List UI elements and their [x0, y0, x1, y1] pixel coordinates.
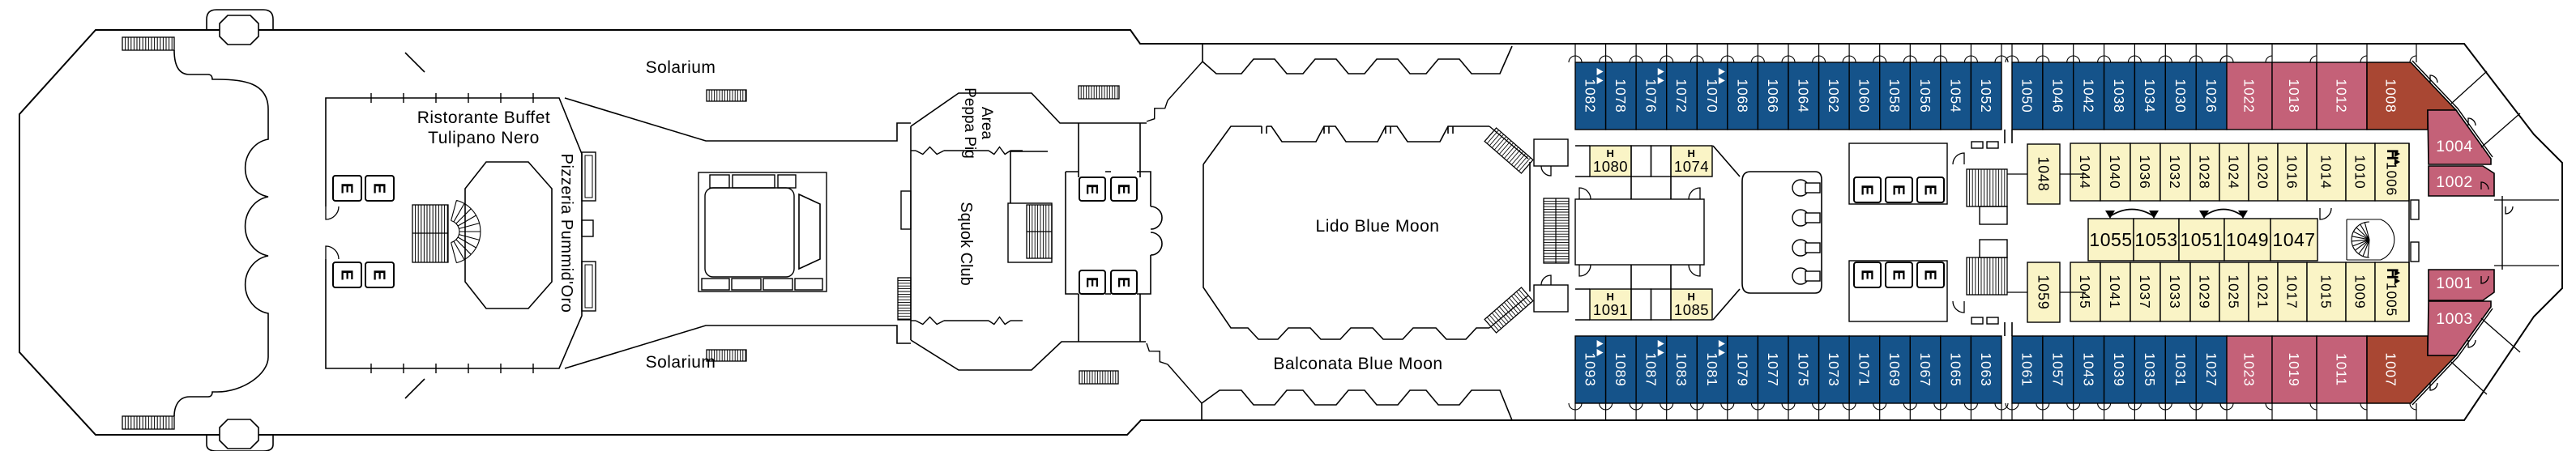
svg-text:1037: 1037	[2137, 274, 2153, 308]
svg-text:1039: 1039	[2111, 352, 2127, 386]
svg-text:1074: 1074	[1674, 158, 1709, 175]
svg-text:1035: 1035	[2142, 352, 2158, 386]
svg-text:1054: 1054	[1947, 79, 1963, 113]
svg-text:E: E	[338, 183, 356, 194]
svg-text:1012: 1012	[2334, 79, 2350, 113]
svg-text:1083: 1083	[1673, 352, 1690, 386]
svg-text:1018: 1018	[2286, 79, 2302, 113]
svg-text:Tulipano Nero: Tulipano Nero	[428, 129, 540, 147]
svg-text:1072: 1072	[1673, 79, 1690, 113]
svg-text:1050: 1050	[2019, 79, 2036, 113]
svg-text:1017: 1017	[2284, 274, 2300, 308]
svg-text:1057: 1057	[2050, 352, 2066, 386]
svg-text:1049: 1049	[2226, 229, 2269, 250]
svg-text:1028: 1028	[2197, 155, 2213, 189]
svg-text:Ristorante Buffet: Ristorante Buffet	[417, 108, 551, 127]
svg-text:1051: 1051	[2180, 229, 2223, 250]
svg-text:1062: 1062	[1826, 79, 1842, 113]
svg-text:1093: 1093	[1583, 352, 1599, 386]
svg-text:1091: 1091	[1593, 301, 1628, 318]
svg-text:1075: 1075	[1796, 352, 1812, 386]
svg-text:E: E	[1083, 277, 1100, 287]
svg-text:1033: 1033	[2167, 274, 2183, 308]
svg-text:1040: 1040	[2107, 155, 2123, 189]
svg-text:1023: 1023	[2241, 352, 2258, 386]
svg-text:1036: 1036	[2137, 155, 2153, 189]
svg-text:1015: 1015	[2318, 274, 2335, 308]
svg-text:1043: 1043	[2080, 352, 2096, 386]
svg-text:1077: 1077	[1765, 352, 1781, 386]
svg-text:1059: 1059	[2036, 274, 2052, 309]
svg-text:E: E	[338, 270, 356, 280]
svg-text:1019: 1019	[2286, 352, 2302, 386]
svg-text:1038: 1038	[2111, 79, 2127, 113]
svg-text:1022: 1022	[2241, 79, 2258, 113]
svg-text:1048: 1048	[2036, 156, 2052, 191]
svg-text:1070: 1070	[1704, 79, 1720, 113]
svg-text:E: E	[1890, 270, 1907, 280]
svg-text:1078: 1078	[1613, 79, 1629, 113]
svg-text:1085: 1085	[1674, 301, 1709, 318]
svg-text:1081: 1081	[1704, 352, 1720, 386]
svg-text:1026: 1026	[2203, 79, 2219, 113]
svg-text:1064: 1064	[1796, 79, 1812, 113]
svg-text:1024: 1024	[2226, 155, 2242, 189]
svg-text:1025: 1025	[2226, 274, 2242, 308]
svg-text:1068: 1068	[1734, 79, 1750, 113]
svg-text:E: E	[1858, 185, 1876, 195]
svg-text:1009: 1009	[2352, 274, 2369, 308]
svg-text:1089: 1089	[1613, 352, 1629, 386]
svg-text:Area: Area	[978, 107, 995, 140]
svg-text:E: E	[1083, 184, 1100, 194]
svg-text:E: E	[1858, 270, 1876, 280]
svg-text:1060: 1060	[1856, 79, 1873, 113]
svg-text:1065: 1065	[1947, 352, 1963, 386]
svg-text:E: E	[1921, 270, 1939, 280]
svg-text:1029: 1029	[2197, 274, 2213, 308]
svg-text:1047: 1047	[2272, 229, 2315, 250]
svg-text:E: E	[370, 270, 388, 280]
svg-text:E: E	[1890, 185, 1907, 195]
svg-text:1021: 1021	[2255, 274, 2271, 308]
svg-text:1041: 1041	[2107, 274, 2123, 308]
svg-text:1016: 1016	[2284, 155, 2300, 189]
svg-text:1063: 1063	[1978, 352, 1994, 386]
svg-text:Lido Blue Moon: Lido Blue Moon	[1316, 217, 1440, 236]
svg-text:1066: 1066	[1765, 79, 1781, 113]
svg-text:1071: 1071	[1856, 352, 1873, 386]
svg-text:1020: 1020	[2255, 155, 2271, 189]
svg-text:Balconata Blue Moon: Balconata Blue Moon	[1273, 355, 1442, 373]
svg-text:1087: 1087	[1643, 352, 1660, 386]
svg-text:E: E	[1921, 185, 1939, 195]
svg-text:1030: 1030	[2172, 79, 2189, 113]
svg-text:1052: 1052	[1978, 79, 1994, 113]
svg-text:1082: 1082	[1583, 79, 1599, 113]
svg-text:E: E	[1114, 277, 1132, 287]
svg-text:1044: 1044	[2077, 155, 2093, 189]
svg-text:1007: 1007	[2383, 352, 2399, 386]
svg-text:1014: 1014	[2318, 155, 2335, 189]
svg-text:1056: 1056	[1917, 79, 1933, 113]
svg-text:1003: 1003	[2436, 310, 2472, 328]
svg-text:E: E	[1114, 184, 1132, 194]
svg-text:1005: 1005	[2384, 283, 2400, 317]
svg-text:1073: 1073	[1826, 352, 1842, 386]
svg-text:1061: 1061	[2019, 352, 2036, 386]
svg-text:Peppa Pig: Peppa Pig	[961, 87, 978, 159]
svg-text:1032: 1032	[2167, 155, 2183, 189]
svg-text:1008: 1008	[2383, 79, 2399, 113]
svg-text:1001: 1001	[2436, 274, 2472, 292]
svg-text:Solarium: Solarium	[646, 353, 716, 372]
svg-text:1031: 1031	[2172, 352, 2189, 386]
svg-text:1067: 1067	[1917, 352, 1933, 386]
svg-text:1027: 1027	[2203, 352, 2219, 386]
svg-text:1042: 1042	[2080, 79, 2096, 113]
svg-text:1034: 1034	[2142, 79, 2158, 113]
svg-text:E: E	[370, 183, 388, 194]
svg-text:1058: 1058	[1886, 79, 1903, 113]
svg-text:1006: 1006	[2384, 162, 2400, 196]
svg-text:1011: 1011	[2334, 353, 2350, 386]
svg-text:1079: 1079	[1734, 352, 1750, 386]
svg-text:1010: 1010	[2352, 155, 2369, 189]
svg-text:1076: 1076	[1643, 79, 1660, 113]
svg-text:1055: 1055	[2089, 229, 2132, 250]
svg-text:1069: 1069	[1886, 352, 1903, 386]
svg-text:Squok Club: Squok Club	[957, 202, 975, 285]
svg-text:1080: 1080	[1593, 158, 1628, 175]
svg-text:1046: 1046	[2050, 79, 2066, 113]
svg-text:1002: 1002	[2436, 173, 2472, 191]
svg-text:1004: 1004	[2436, 138, 2472, 155]
svg-text:Solarium: Solarium	[646, 58, 716, 77]
svg-text:Pizzeria Pummid'Oro: Pizzeria Pummid'Oro	[557, 154, 575, 313]
svg-text:1053: 1053	[2134, 229, 2177, 250]
